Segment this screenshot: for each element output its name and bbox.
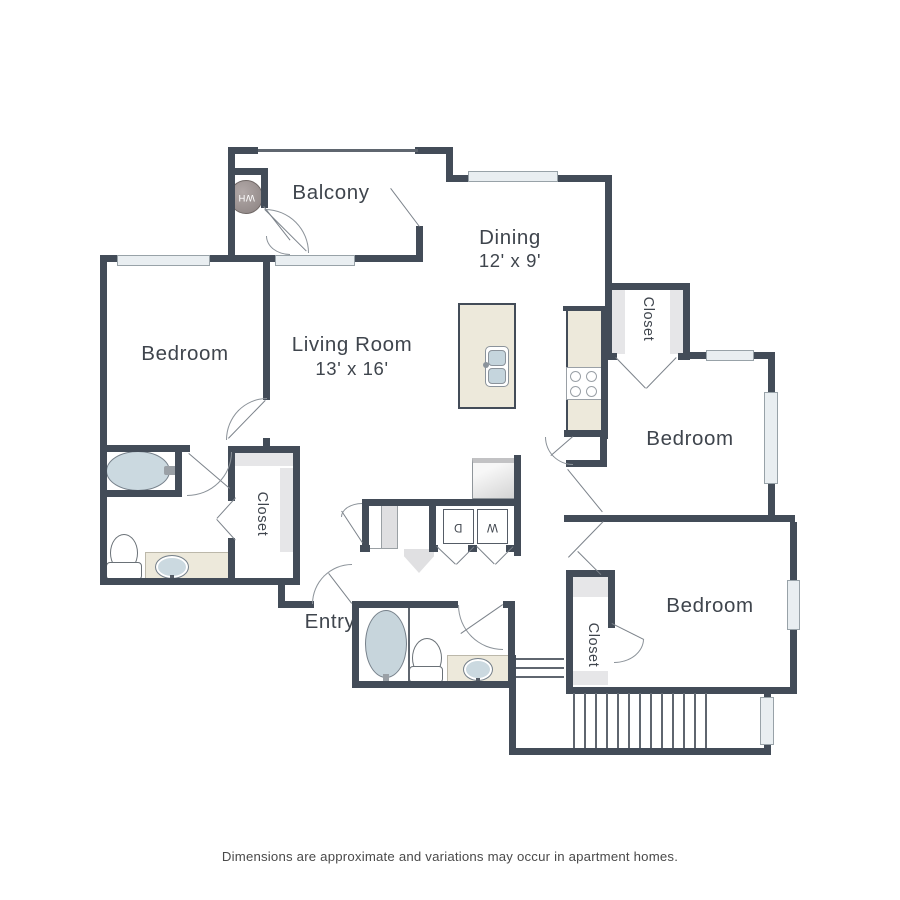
door-leaf: [456, 546, 474, 564]
door-swing-arc: [545, 437, 573, 465]
door-leaf: [216, 519, 235, 540]
wall: [564, 430, 607, 437]
room-label-bedroom-bottom: Bedroom: [630, 594, 790, 618]
door-leaf: [217, 497, 236, 518]
door-swing-arc: [226, 398, 267, 440]
thin-line: [661, 693, 663, 748]
wall: [208, 255, 270, 262]
door-leaf: [567, 469, 603, 512]
door-leaf: [612, 623, 645, 640]
room-label-living: Living Room: [272, 333, 432, 357]
thin-line: [595, 693, 597, 748]
closet-label-left: Closet: [254, 474, 270, 554]
wall: [768, 480, 775, 522]
stove: [566, 367, 603, 400]
window: [706, 350, 754, 361]
door-leaf: [476, 546, 494, 564]
wall: [790, 626, 797, 694]
thin-line: [672, 693, 674, 748]
thin-line: [408, 608, 410, 681]
room-label-dining: Dining: [430, 226, 590, 250]
window: [787, 580, 800, 630]
room-label-entry: Entry: [270, 610, 390, 634]
wall: [228, 446, 300, 453]
dryer-label: D: [454, 521, 462, 533]
room-dims-living: 13' x 16': [272, 358, 432, 380]
door-leaf: [568, 521, 604, 558]
closet-shelf: [573, 577, 608, 597]
window: [468, 171, 558, 182]
closet-panel: [381, 503, 398, 549]
room-dims-dining: 12' x 9': [430, 250, 590, 272]
room-label-bedroom-left: Bedroom: [105, 342, 265, 366]
closet-shelf: [670, 290, 683, 354]
wall: [100, 490, 182, 497]
room-label-bedroom-right: Bedroom: [610, 427, 770, 451]
wall: [352, 681, 515, 688]
wall: [450, 175, 468, 182]
floor-plan: D W WH Balcony Dining 12' x 9' Living Ro…: [0, 0, 900, 900]
wall: [683, 352, 708, 359]
thin-line: [694, 693, 696, 748]
sliding-door-panel: [404, 549, 434, 573]
wall: [362, 499, 515, 506]
closet-shelf: [235, 453, 293, 466]
door-swing-arc: [458, 605, 503, 650]
thin-line: [639, 693, 641, 748]
wall: [263, 255, 270, 400]
window: [764, 392, 778, 484]
wall: [100, 255, 107, 585]
wall: [564, 515, 795, 522]
wall: [429, 499, 436, 550]
wall: [605, 283, 612, 360]
wall: [416, 226, 423, 262]
door-swing-arc: [187, 452, 232, 496]
door-swing-arc: [341, 503, 362, 517]
wall: [228, 147, 235, 262]
wall: [509, 748, 771, 755]
thin-line: [705, 693, 707, 748]
thin-line: [516, 676, 564, 678]
wall: [683, 283, 690, 360]
closet-shelf: [612, 290, 625, 354]
sink-basin: [488, 368, 506, 384]
thin-line: [606, 693, 608, 748]
thin-line: [573, 693, 575, 748]
wall: [558, 175, 612, 182]
closet-panel: [368, 503, 382, 549]
wall: [278, 601, 314, 608]
door-leaf: [615, 357, 646, 389]
wall: [360, 545, 370, 552]
window: [117, 255, 210, 266]
room-label-balcony: Balcony: [251, 181, 411, 205]
wall: [261, 168, 268, 208]
wall: [608, 575, 615, 628]
wall: [605, 175, 612, 290]
door-leaf: [495, 546, 513, 564]
door-swing-arc: [312, 564, 352, 604]
disclaimer-text: Dimensions are approximate and variation…: [0, 849, 900, 864]
thin-line: [683, 693, 685, 748]
thin-line: [258, 149, 418, 152]
wall: [790, 522, 797, 584]
thin-line: [516, 667, 564, 669]
door-leaf: [436, 546, 456, 565]
wall: [352, 601, 359, 688]
wall: [509, 655, 516, 755]
dryer: D: [443, 509, 474, 544]
refrigerator: [472, 458, 515, 499]
wall: [293, 446, 300, 585]
sink-faucet: [483, 362, 489, 368]
thin-line: [584, 693, 586, 748]
wall: [100, 578, 300, 585]
door-leaf: [646, 357, 677, 389]
closet-shelf: [573, 671, 608, 685]
wall: [566, 687, 797, 694]
door-swing-arc: [614, 639, 644, 663]
wall: [566, 570, 573, 694]
washer: W: [477, 509, 508, 544]
washer-label: W: [487, 521, 498, 533]
thin-line: [617, 693, 619, 748]
wall: [228, 538, 235, 585]
thin-line: [650, 693, 652, 748]
window: [275, 255, 355, 266]
wall: [768, 352, 775, 396]
wall: [362, 499, 369, 550]
sink-basin: [488, 350, 506, 366]
closet-label-upper-right: Closet: [640, 279, 656, 359]
closet-shelf: [280, 468, 293, 552]
thin-line: [516, 658, 564, 660]
wall: [514, 455, 521, 556]
wall: [352, 601, 458, 608]
thin-line: [628, 693, 630, 748]
window: [760, 697, 774, 745]
bathtub: [106, 451, 170, 491]
wall: [353, 255, 421, 262]
wall: [605, 283, 690, 290]
